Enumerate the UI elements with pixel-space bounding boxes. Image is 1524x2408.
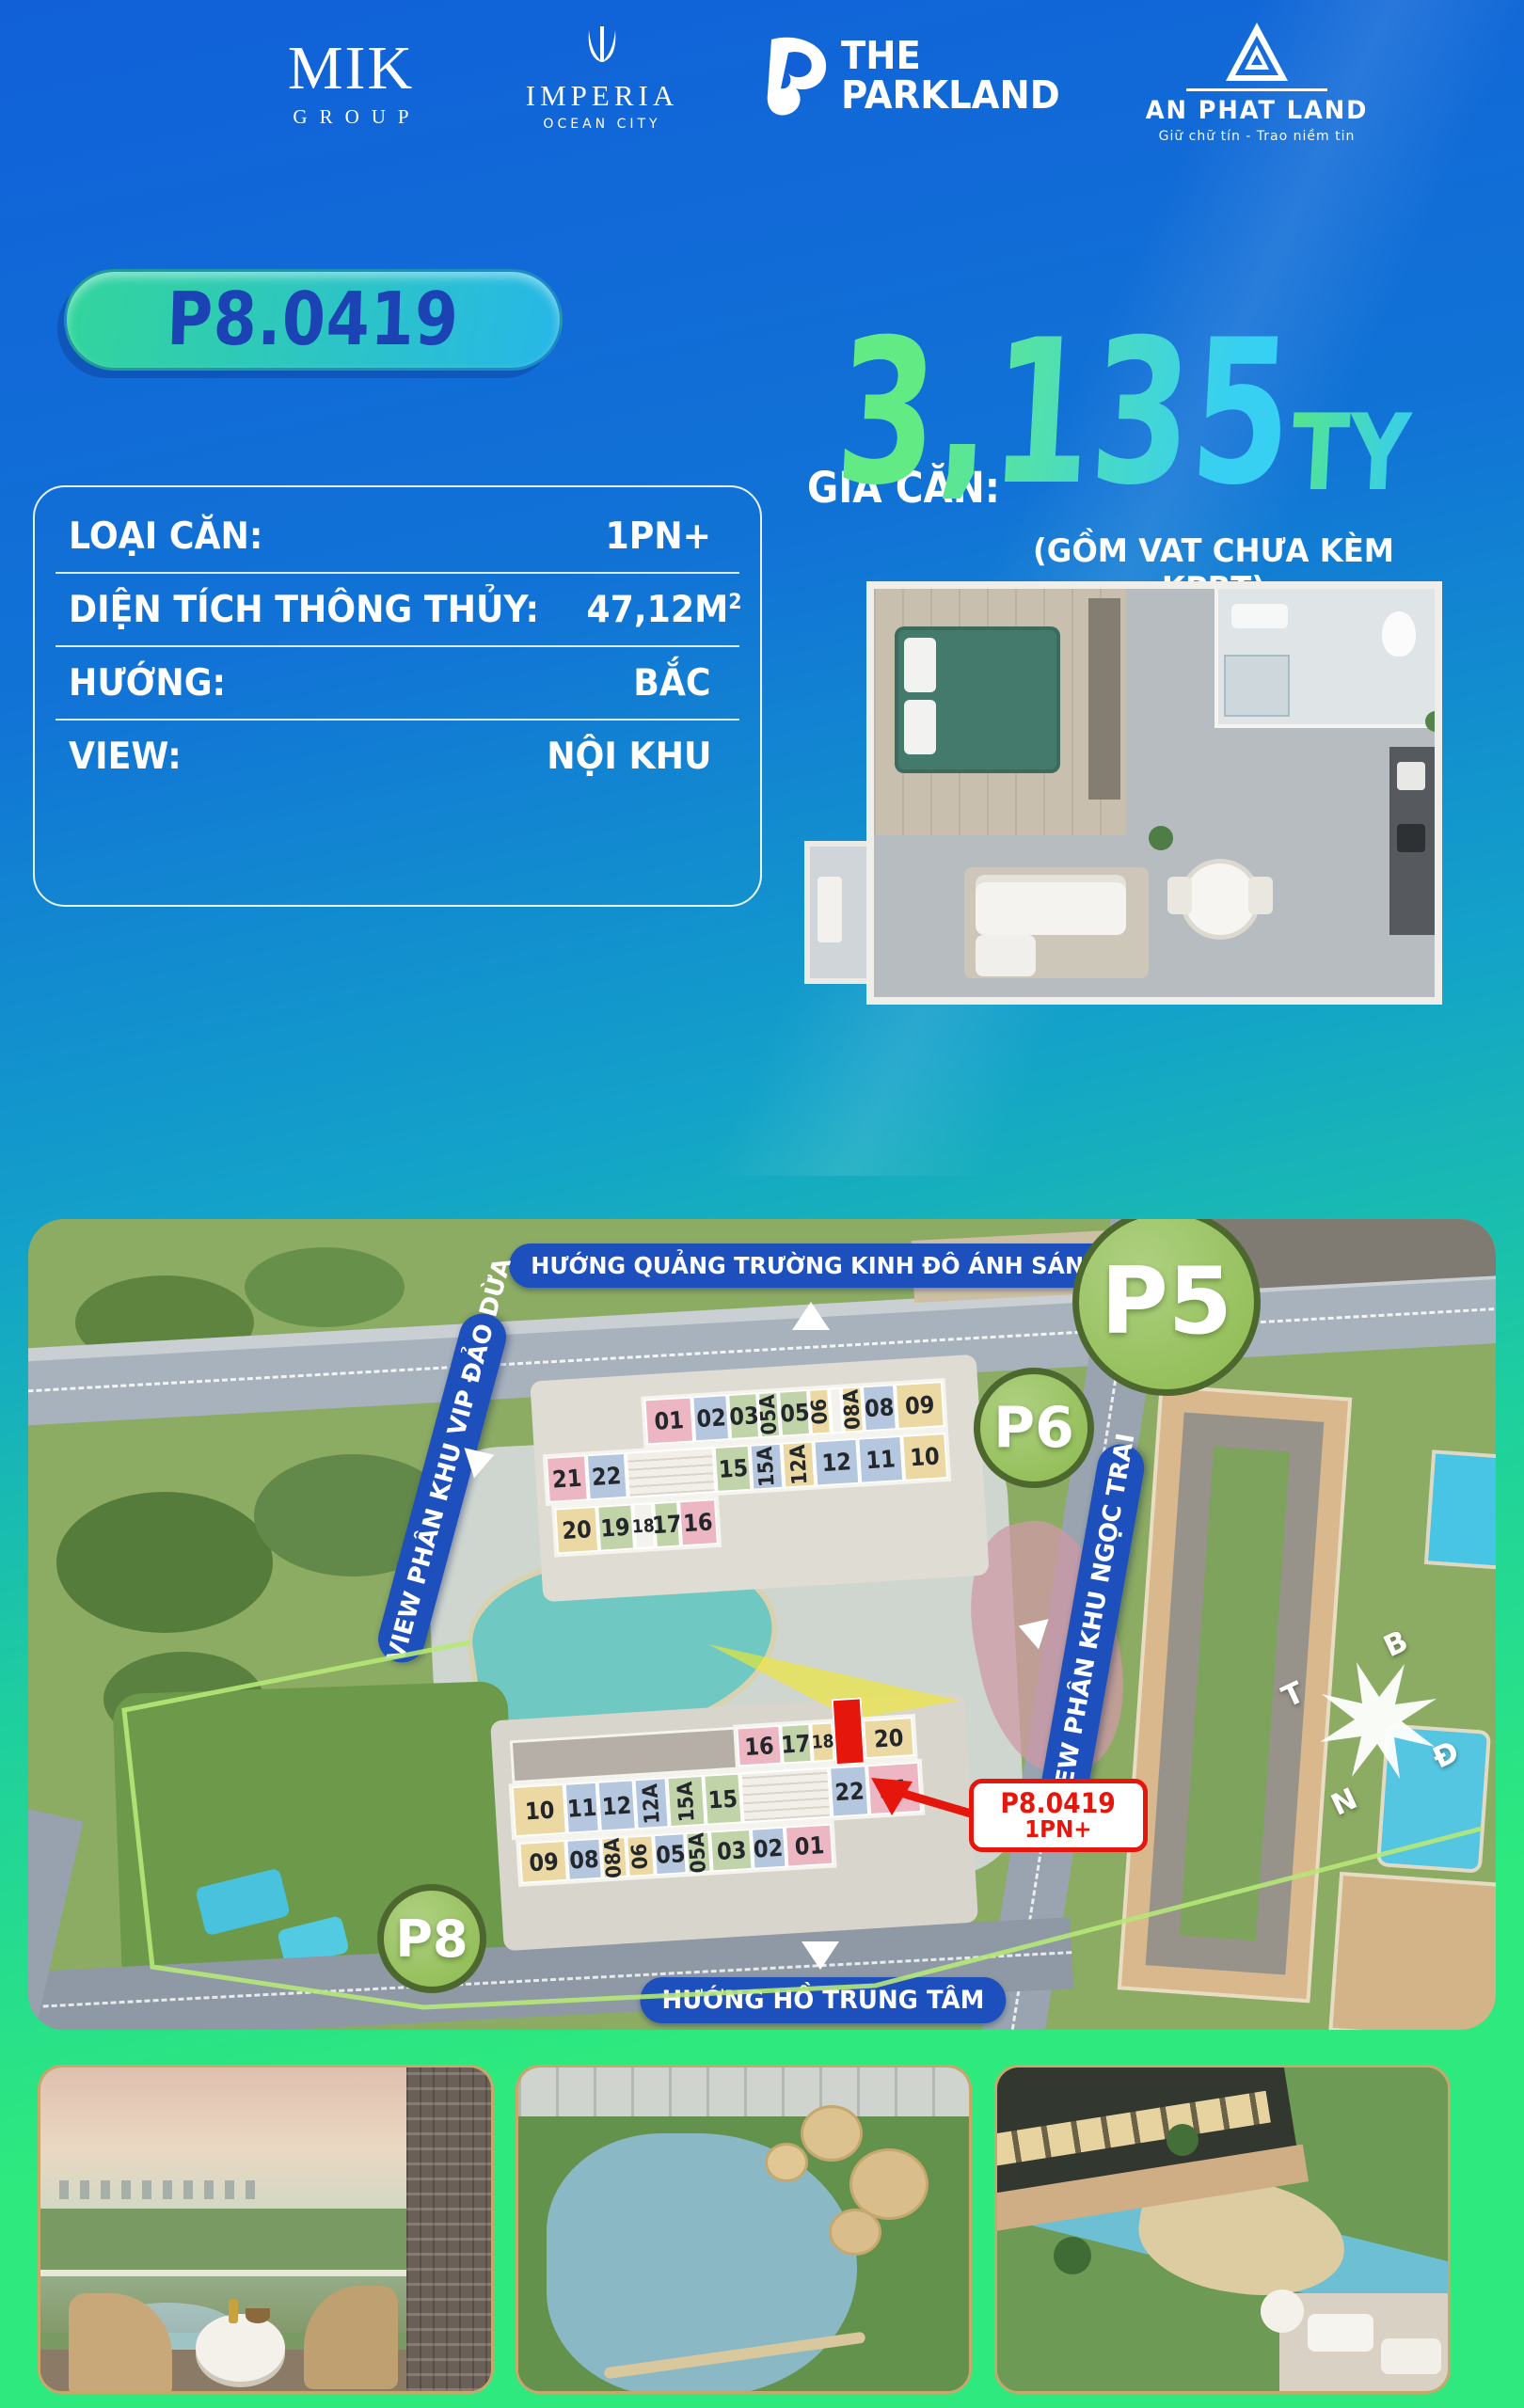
- anphat-tagline: Giữ chữ tín - Trao niềm tin: [1125, 129, 1389, 144]
- floorplan-plant: [1425, 711, 1442, 732]
- floorplan-chair: [1248, 877, 1273, 914]
- photo-resort-pool-courtyard: [994, 2065, 1451, 2394]
- detail-label: LOẠI CĂN:: [69, 515, 262, 558]
- floorplan-dining-table: [1184, 863, 1256, 935]
- photo-palm: [1054, 2237, 1091, 2274]
- price-unit: TỶ: [1289, 408, 1412, 499]
- photo-table: [196, 2314, 285, 2382]
- imperia-ocean-city-logo: IMPERIA OCEAN CITY: [508, 24, 696, 132]
- detail-row-view: VIEW: NỘI KHU: [35, 721, 760, 792]
- parkland-p-icon: [760, 36, 830, 117]
- detail-row-area: DIỆN TÍCH THÔNG THỦY: 47,12M2: [35, 574, 760, 645]
- callout-unit-type: 1PN+: [1024, 1817, 1091, 1842]
- imperia-tulip-icon: [581, 24, 623, 75]
- photo-canopy: [829, 2209, 881, 2256]
- floorplan-bench: [818, 877, 842, 943]
- floorplan-toilet: [1382, 611, 1416, 657]
- mik-logo-sub: GROUP: [262, 105, 440, 129]
- floorplan-sofa: [976, 882, 1126, 935]
- photo-bottle: [229, 2299, 238, 2323]
- site-map: 01020305A050608A080921221515A12A12111020…: [28, 1219, 1496, 2030]
- detail-value: BẮC: [634, 662, 711, 705]
- unit-details-card: LOẠI CĂN: 1PN+ DIỆN TÍCH THÔNG THỦY: 47,…: [33, 485, 762, 907]
- imperia-logo-text: IMPERIA: [508, 79, 696, 113]
- parkland-logo-text: THE PARKLAND: [841, 37, 1060, 116]
- floor-plan-image: [804, 576, 1449, 1010]
- imperia-logo-sub: OCEAN CITY: [508, 117, 696, 132]
- detail-label: DIỆN TÍCH THÔNG THỦY:: [69, 589, 539, 631]
- floorplan-shower: [1224, 655, 1290, 717]
- parkland-line2: PARKLAND: [841, 76, 1060, 116]
- floorplan-pillow: [904, 700, 936, 754]
- unit-code-badge: P8.0419: [64, 269, 563, 371]
- detail-value: 1PN+: [605, 515, 711, 558]
- photo-tower: [406, 2067, 491, 2391]
- photo-balcony-rail: [40, 2270, 410, 2276]
- callout-unit-code: P8.0419: [1001, 1789, 1117, 1817]
- mik-group-logo: MIK GROUP: [262, 38, 440, 129]
- detail-label: VIEW:: [69, 736, 182, 778]
- photo-road: [518, 2067, 969, 2116]
- detail-label: HƯỚNG:: [69, 662, 226, 705]
- an-phat-land-logo: AN PHAT LAND Giữ chữ tín - Trao niềm tin: [1125, 21, 1389, 144]
- floorplan-chaise: [976, 935, 1036, 976]
- photo-umbrella: [1261, 2289, 1304, 2333]
- photo-skyline: [59, 2180, 266, 2199]
- photo-sofa: [1381, 2338, 1441, 2374]
- floorplan-pillow: [904, 638, 936, 692]
- parkland-line1: THE: [841, 37, 1060, 76]
- floorplan-plant: [1149, 826, 1173, 850]
- real-estate-flyer: { "theme": { "bg_top": "#1160d8", "bg_mi…: [0, 0, 1524, 2408]
- photo-palm: [1167, 2124, 1199, 2156]
- photo-canopy: [801, 2105, 863, 2162]
- the-parkland-logo: THE PARKLAND: [760, 36, 1080, 117]
- price-number: 3,135: [833, 327, 1295, 499]
- photo-bowl: [246, 2308, 270, 2323]
- floorplan-stove: [1397, 824, 1425, 852]
- photo-sofa: [1308, 2314, 1373, 2352]
- anphat-logo-text: AN PHAT LAND: [1132, 96, 1382, 125]
- detail-row-type: LOẠI CĂN: 1PN+: [35, 500, 760, 572]
- floorplan-wardrobe: [1088, 598, 1120, 800]
- price-value: 3,135 TỶ: [656, 327, 1446, 499]
- floorplan-unit-outline: [866, 581, 1442, 1005]
- floorplan-chair: [1167, 877, 1192, 914]
- photo-balcony-city-view: [38, 2065, 494, 2394]
- detail-value: NỘI KHU: [547, 736, 711, 778]
- callout-arrow-layer: [28, 1219, 1496, 2030]
- photo-aerial-lake-park: [516, 2065, 972, 2394]
- photo-canopy: [765, 2143, 808, 2182]
- highlight-unit-callout: P8.0419 1PN+: [969, 1779, 1148, 1852]
- mik-logo-text: MIK: [262, 38, 440, 100]
- anphat-divider: [1186, 88, 1327, 91]
- callout-arrow-line: [901, 1793, 971, 1814]
- detail-row-direction: HƯỚNG: BẮC: [35, 647, 760, 719]
- unit-code-text: P8.0419: [166, 277, 460, 362]
- detail-value: 47,12M2: [586, 589, 741, 631]
- anphat-triangle-icon: [1224, 21, 1290, 83]
- floorplan-sink: [1231, 604, 1288, 628]
- floorplan-kitchen-sink: [1397, 762, 1425, 790]
